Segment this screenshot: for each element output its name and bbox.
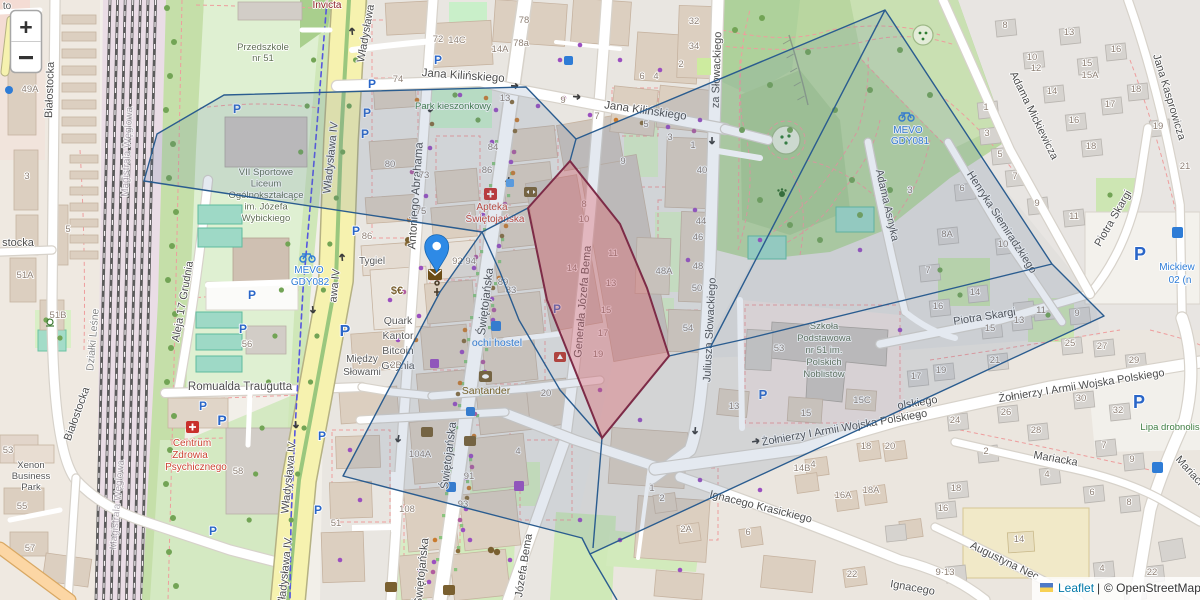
svg-text:Invicta: Invicta — [313, 0, 342, 11]
svg-text:20: 20 — [885, 441, 896, 452]
svg-text:$€: $€ — [391, 285, 403, 297]
svg-text:to: to — [3, 1, 12, 12]
svg-text:5: 5 — [997, 149, 1002, 160]
svg-text:78: 78 — [519, 15, 530, 26]
svg-text:18A: 18A — [863, 485, 881, 496]
svg-text:14: 14 — [1014, 534, 1025, 545]
svg-text:18: 18 — [861, 441, 872, 452]
svg-text:P: P — [352, 224, 360, 238]
svg-text:16: 16 — [1069, 115, 1080, 126]
svg-text:P: P — [368, 77, 376, 91]
svg-text:3: 3 — [24, 171, 29, 182]
svg-text:nr 51: nr 51 — [252, 53, 274, 64]
svg-text:55: 55 — [17, 501, 28, 512]
svg-text:12: 12 — [1031, 63, 1042, 74]
svg-text:3: 3 — [984, 128, 989, 139]
svg-text:22: 22 — [1147, 567, 1158, 578]
svg-text:32: 32 — [1113, 405, 1124, 416]
svg-text:4: 4 — [1044, 469, 1049, 480]
svg-text:16A: 16A — [835, 490, 853, 501]
svg-text:Leaflet: Leaflet — [1058, 581, 1095, 595]
svg-text:34: 34 — [689, 41, 700, 52]
svg-text:Między: Między — [346, 354, 378, 365]
svg-text:17: 17 — [1105, 99, 1116, 110]
svg-text:58: 58 — [233, 466, 244, 477]
svg-text:27: 27 — [1097, 341, 1108, 352]
svg-text:6: 6 — [639, 71, 644, 82]
svg-text:19: 19 — [1153, 121, 1164, 132]
svg-text:MEVO: MEVO — [294, 265, 324, 276]
svg-text:29: 29 — [1129, 355, 1140, 366]
svg-text:7: 7 — [1012, 171, 1017, 182]
svg-text:P: P — [217, 412, 226, 428]
svg-text:78a: 78a — [513, 38, 530, 49]
svg-text:P: P — [434, 53, 442, 67]
svg-text:Romualda Traugutta: Romualda Traugutta — [188, 381, 293, 393]
svg-text:57: 57 — [25, 543, 36, 554]
svg-text:9: 9 — [1129, 454, 1134, 465]
svg-text:P: P — [209, 524, 217, 538]
svg-text:Centrum: Centrum — [173, 438, 211, 449]
svg-text:74: 74 — [393, 74, 404, 85]
svg-text:25: 25 — [1065, 338, 1076, 349]
svg-text:10: 10 — [1027, 52, 1038, 63]
svg-text:9·13: 9·13 — [935, 567, 954, 578]
svg-text:Park: Park — [21, 482, 41, 493]
svg-text:8: 8 — [1002, 20, 1007, 31]
svg-text:© OpenStreetMap: © OpenStreetMap — [1104, 581, 1200, 595]
svg-text:|: | — [1097, 581, 1100, 595]
svg-text:22: 22 — [847, 569, 858, 580]
svg-text:14: 14 — [1047, 86, 1058, 97]
svg-text:14B: 14B — [794, 463, 811, 474]
svg-text:im. Józefa: im. Józefa — [244, 202, 288, 213]
svg-text:P: P — [340, 323, 351, 340]
svg-text:49A: 49A — [22, 84, 40, 95]
svg-text:108: 108 — [399, 504, 415, 515]
svg-text:56: 56 — [242, 339, 253, 350]
svg-text:24: 24 — [950, 415, 961, 426]
svg-text:Mickiew: Mickiew — [1159, 262, 1195, 273]
svg-text:P: P — [239, 322, 247, 336]
svg-text:stocka: stocka — [2, 237, 35, 249]
svg-text:Lipa drobnolis: Lipa drobnolis — [1140, 422, 1199, 433]
svg-text:P: P — [199, 399, 207, 413]
svg-text:02 (n: 02 (n — [1169, 275, 1192, 286]
svg-text:7: 7 — [1101, 440, 1106, 451]
svg-text:86: 86 — [362, 231, 373, 242]
svg-text:4: 4 — [653, 71, 658, 82]
svg-text:Quark: Quark — [384, 315, 413, 327]
svg-text:15A: 15A — [1082, 70, 1100, 81]
svg-text:51B: 51B — [50, 310, 67, 321]
svg-text:18: 18 — [951, 483, 962, 494]
svg-text:6: 6 — [1089, 487, 1094, 498]
svg-text:P: P — [314, 503, 322, 517]
svg-text:2: 2 — [678, 59, 683, 70]
svg-text:GDY082: GDY082 — [291, 277, 330, 288]
svg-text:32: 32 — [689, 16, 700, 27]
svg-text:Kantor: Kantor — [383, 330, 414, 342]
svg-text:Psychicznego: Psychicznego — [165, 462, 227, 473]
svg-text:Xenon: Xenon — [17, 460, 44, 471]
svg-text:Słowami: Słowami — [343, 367, 381, 378]
svg-text:1: 1 — [983, 102, 988, 113]
svg-text:P: P — [1134, 244, 1146, 264]
svg-text:9: 9 — [1034, 198, 1039, 209]
svg-text:Zdrowia: Zdrowia — [172, 450, 208, 461]
svg-text:13: 13 — [1064, 27, 1075, 38]
svg-text:15: 15 — [1082, 58, 1093, 69]
svg-text:6: 6 — [745, 527, 750, 538]
svg-text:53: 53 — [3, 445, 14, 456]
svg-text:7: 7 — [594, 111, 599, 122]
svg-text:18: 18 — [1086, 141, 1097, 152]
svg-text:72: 72 — [433, 34, 444, 45]
svg-text:51A: 51A — [17, 270, 35, 281]
svg-text:8: 8 — [1126, 497, 1131, 508]
svg-text:Wybickiego: Wybickiego — [242, 213, 291, 224]
svg-text:P: P — [318, 429, 326, 443]
svg-text:Tygiel: Tygiel — [359, 256, 385, 267]
svg-text:28: 28 — [1031, 425, 1042, 436]
svg-text:Białostocka: Białostocka — [43, 61, 57, 119]
svg-text:21: 21 — [1180, 161, 1191, 172]
svg-text:Przedszkole: Przedszkole — [237, 42, 289, 53]
svg-text:4: 4 — [810, 459, 815, 470]
svg-text:16: 16 — [1111, 44, 1122, 55]
svg-text:P: P — [248, 288, 256, 302]
svg-text:51: 51 — [331, 518, 342, 529]
svg-text:14A: 14A — [492, 44, 510, 55]
svg-text:11: 11 — [1069, 211, 1079, 222]
svg-text:26: 26 — [1001, 407, 1012, 418]
svg-text:4: 4 — [1099, 563, 1104, 574]
svg-text:2: 2 — [983, 446, 988, 457]
svg-text:18: 18 — [1131, 84, 1142, 95]
svg-text:P: P — [1133, 392, 1145, 412]
svg-text:5: 5 — [65, 224, 70, 235]
svg-text:+: + — [19, 14, 32, 40]
svg-text:2A: 2A — [680, 524, 692, 535]
svg-text:16: 16 — [938, 503, 949, 514]
svg-text:14C: 14C — [448, 35, 466, 46]
svg-text:30: 30 — [1076, 393, 1087, 404]
svg-text:Business: Business — [12, 471, 51, 482]
svg-text:9: 9 — [560, 95, 565, 106]
